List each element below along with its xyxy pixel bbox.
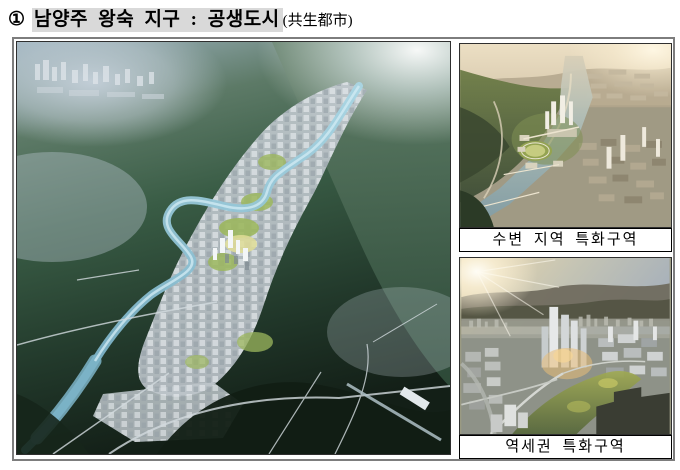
- waterfront-zone-caption-text: 수변 지역 특화구역: [493, 232, 639, 248]
- main-aerial-image: [16, 41, 451, 455]
- station-zone-caption-text: 역세권 특화구역: [505, 439, 625, 455]
- waterfront-zone-image: [459, 43, 672, 228]
- figure-frame: 수변 지역 특화구역: [12, 37, 675, 461]
- title-number-marker: ①: [8, 9, 25, 30]
- right-panel: 수변 지역 특화구역: [459, 43, 672, 459]
- waterfront-zone-caption: 수변 지역 특화구역: [459, 228, 672, 252]
- title-hanja-suffix: (共生都市): [283, 13, 353, 29]
- page-title: ①남양주 왕숙 지구 : 공생도시(共生都市): [8, 4, 353, 34]
- main-aerial-art: [17, 42, 450, 454]
- station-zone-caption: 역세권 특화구역: [459, 435, 672, 459]
- waterfront-zone-art: [460, 44, 671, 227]
- title-text-highlighted: 남양주 왕숙 지구 : 공생도시: [32, 8, 283, 32]
- station-zone-image: [459, 257, 672, 435]
- station-zone-art: [460, 258, 671, 434]
